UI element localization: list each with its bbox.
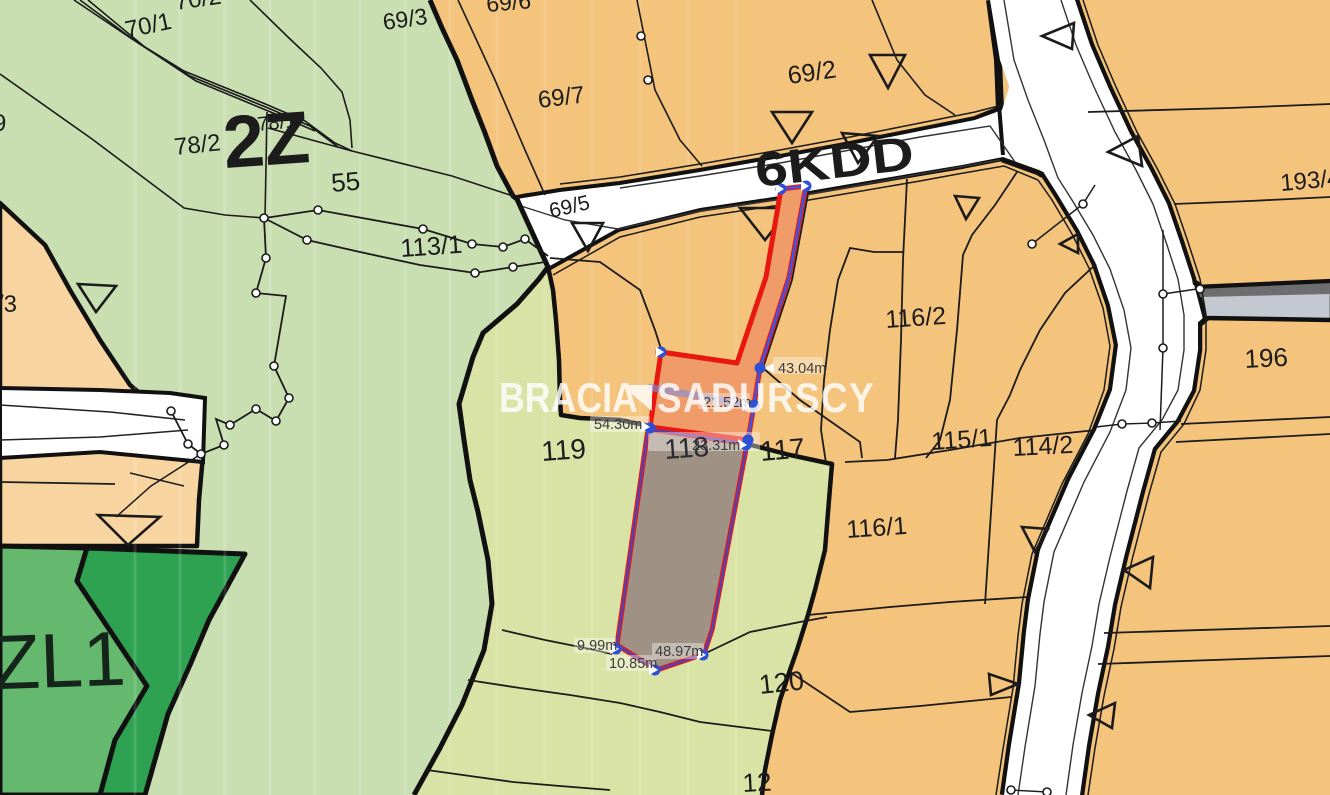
svg-text:48.97m: 48.97m: [655, 644, 703, 660]
svg-text:10.85m: 10.85m: [609, 656, 657, 672]
svg-text:113/1: 113/1: [399, 231, 463, 263]
svg-text:/3: /3: [0, 291, 17, 318]
svg-text:116/2: 116/2: [884, 302, 947, 334]
svg-text:117: 117: [759, 432, 806, 467]
svg-text:78/2: 78/2: [173, 129, 222, 161]
svg-text:SADURSCY: SADURSCY: [657, 375, 875, 422]
svg-text:193/4: 193/4: [1279, 165, 1330, 197]
svg-text:9.99m: 9.99m: [577, 638, 617, 654]
svg-text:55: 55: [330, 166, 361, 198]
svg-text:12: 12: [742, 767, 772, 795]
svg-text:115/1: 115/1: [930, 424, 993, 456]
svg-text:116/1: 116/1: [845, 512, 908, 544]
svg-text:120: 120: [757, 665, 805, 700]
svg-text:119: 119: [540, 433, 587, 467]
svg-text:23.31m: 23.31m: [692, 438, 740, 454]
svg-text:114/2: 114/2: [1012, 431, 1074, 462]
svg-text:69/7: 69/7: [536, 81, 586, 113]
svg-text:9: 9: [0, 110, 6, 137]
svg-text:196: 196: [1244, 342, 1289, 374]
svg-text:ZL1: ZL1: [0, 616, 127, 707]
svg-text:2Z: 2Z: [220, 95, 312, 184]
svg-text:BRACIA: BRACIA: [499, 375, 638, 421]
